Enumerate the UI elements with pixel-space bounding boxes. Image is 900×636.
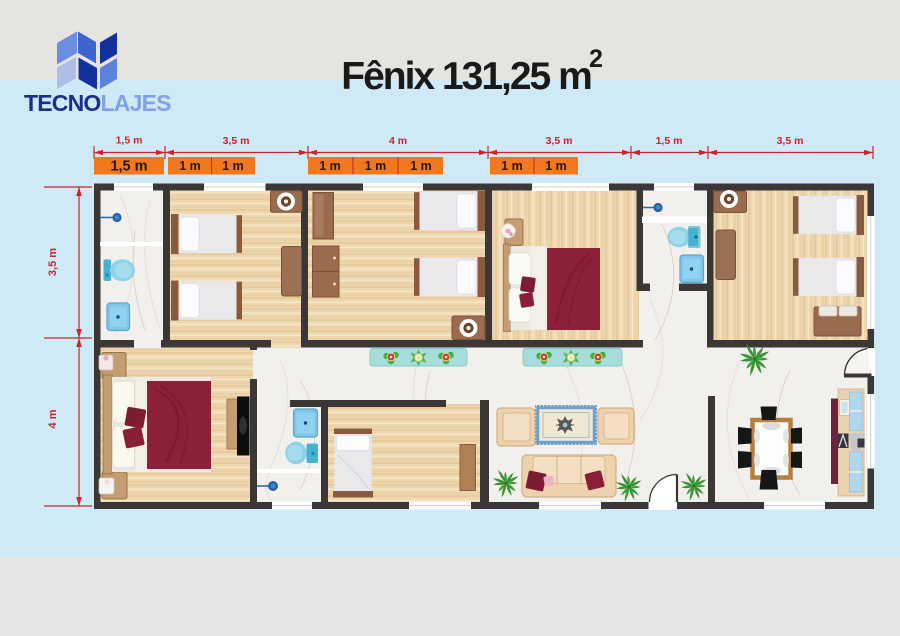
svg-text:3,5 m: 3,5 m (777, 135, 804, 147)
svg-text:3,5 m: 3,5 m (546, 135, 573, 147)
svg-text:1 m: 1 m (179, 159, 201, 173)
svg-text:1 m: 1 m (222, 159, 244, 173)
svg-text:1 m: 1 m (545, 159, 567, 173)
svg-text:4 m: 4 m (47, 409, 59, 428)
svg-text:4 m: 4 m (389, 135, 407, 147)
svg-text:Fênix 131,25 m: Fênix 131,25 m (341, 55, 591, 98)
svg-text:3,5 m: 3,5 m (223, 135, 250, 147)
svg-text:1 m: 1 m (501, 159, 523, 173)
svg-text:2: 2 (589, 45, 603, 73)
svg-text:1,5 m: 1,5 m (656, 135, 683, 147)
svg-text:1,5 m: 1,5 m (110, 159, 147, 175)
svg-text:1,5 m: 1,5 m (116, 135, 143, 147)
svg-text:3,5 m: 3,5 m (47, 248, 59, 276)
svg-text:1 m: 1 m (410, 159, 432, 173)
svg-text:1 m: 1 m (365, 159, 387, 173)
svg-text:1 m: 1 m (319, 159, 341, 173)
svg-text:TECNOLAJES: TECNOLAJES (24, 90, 171, 116)
